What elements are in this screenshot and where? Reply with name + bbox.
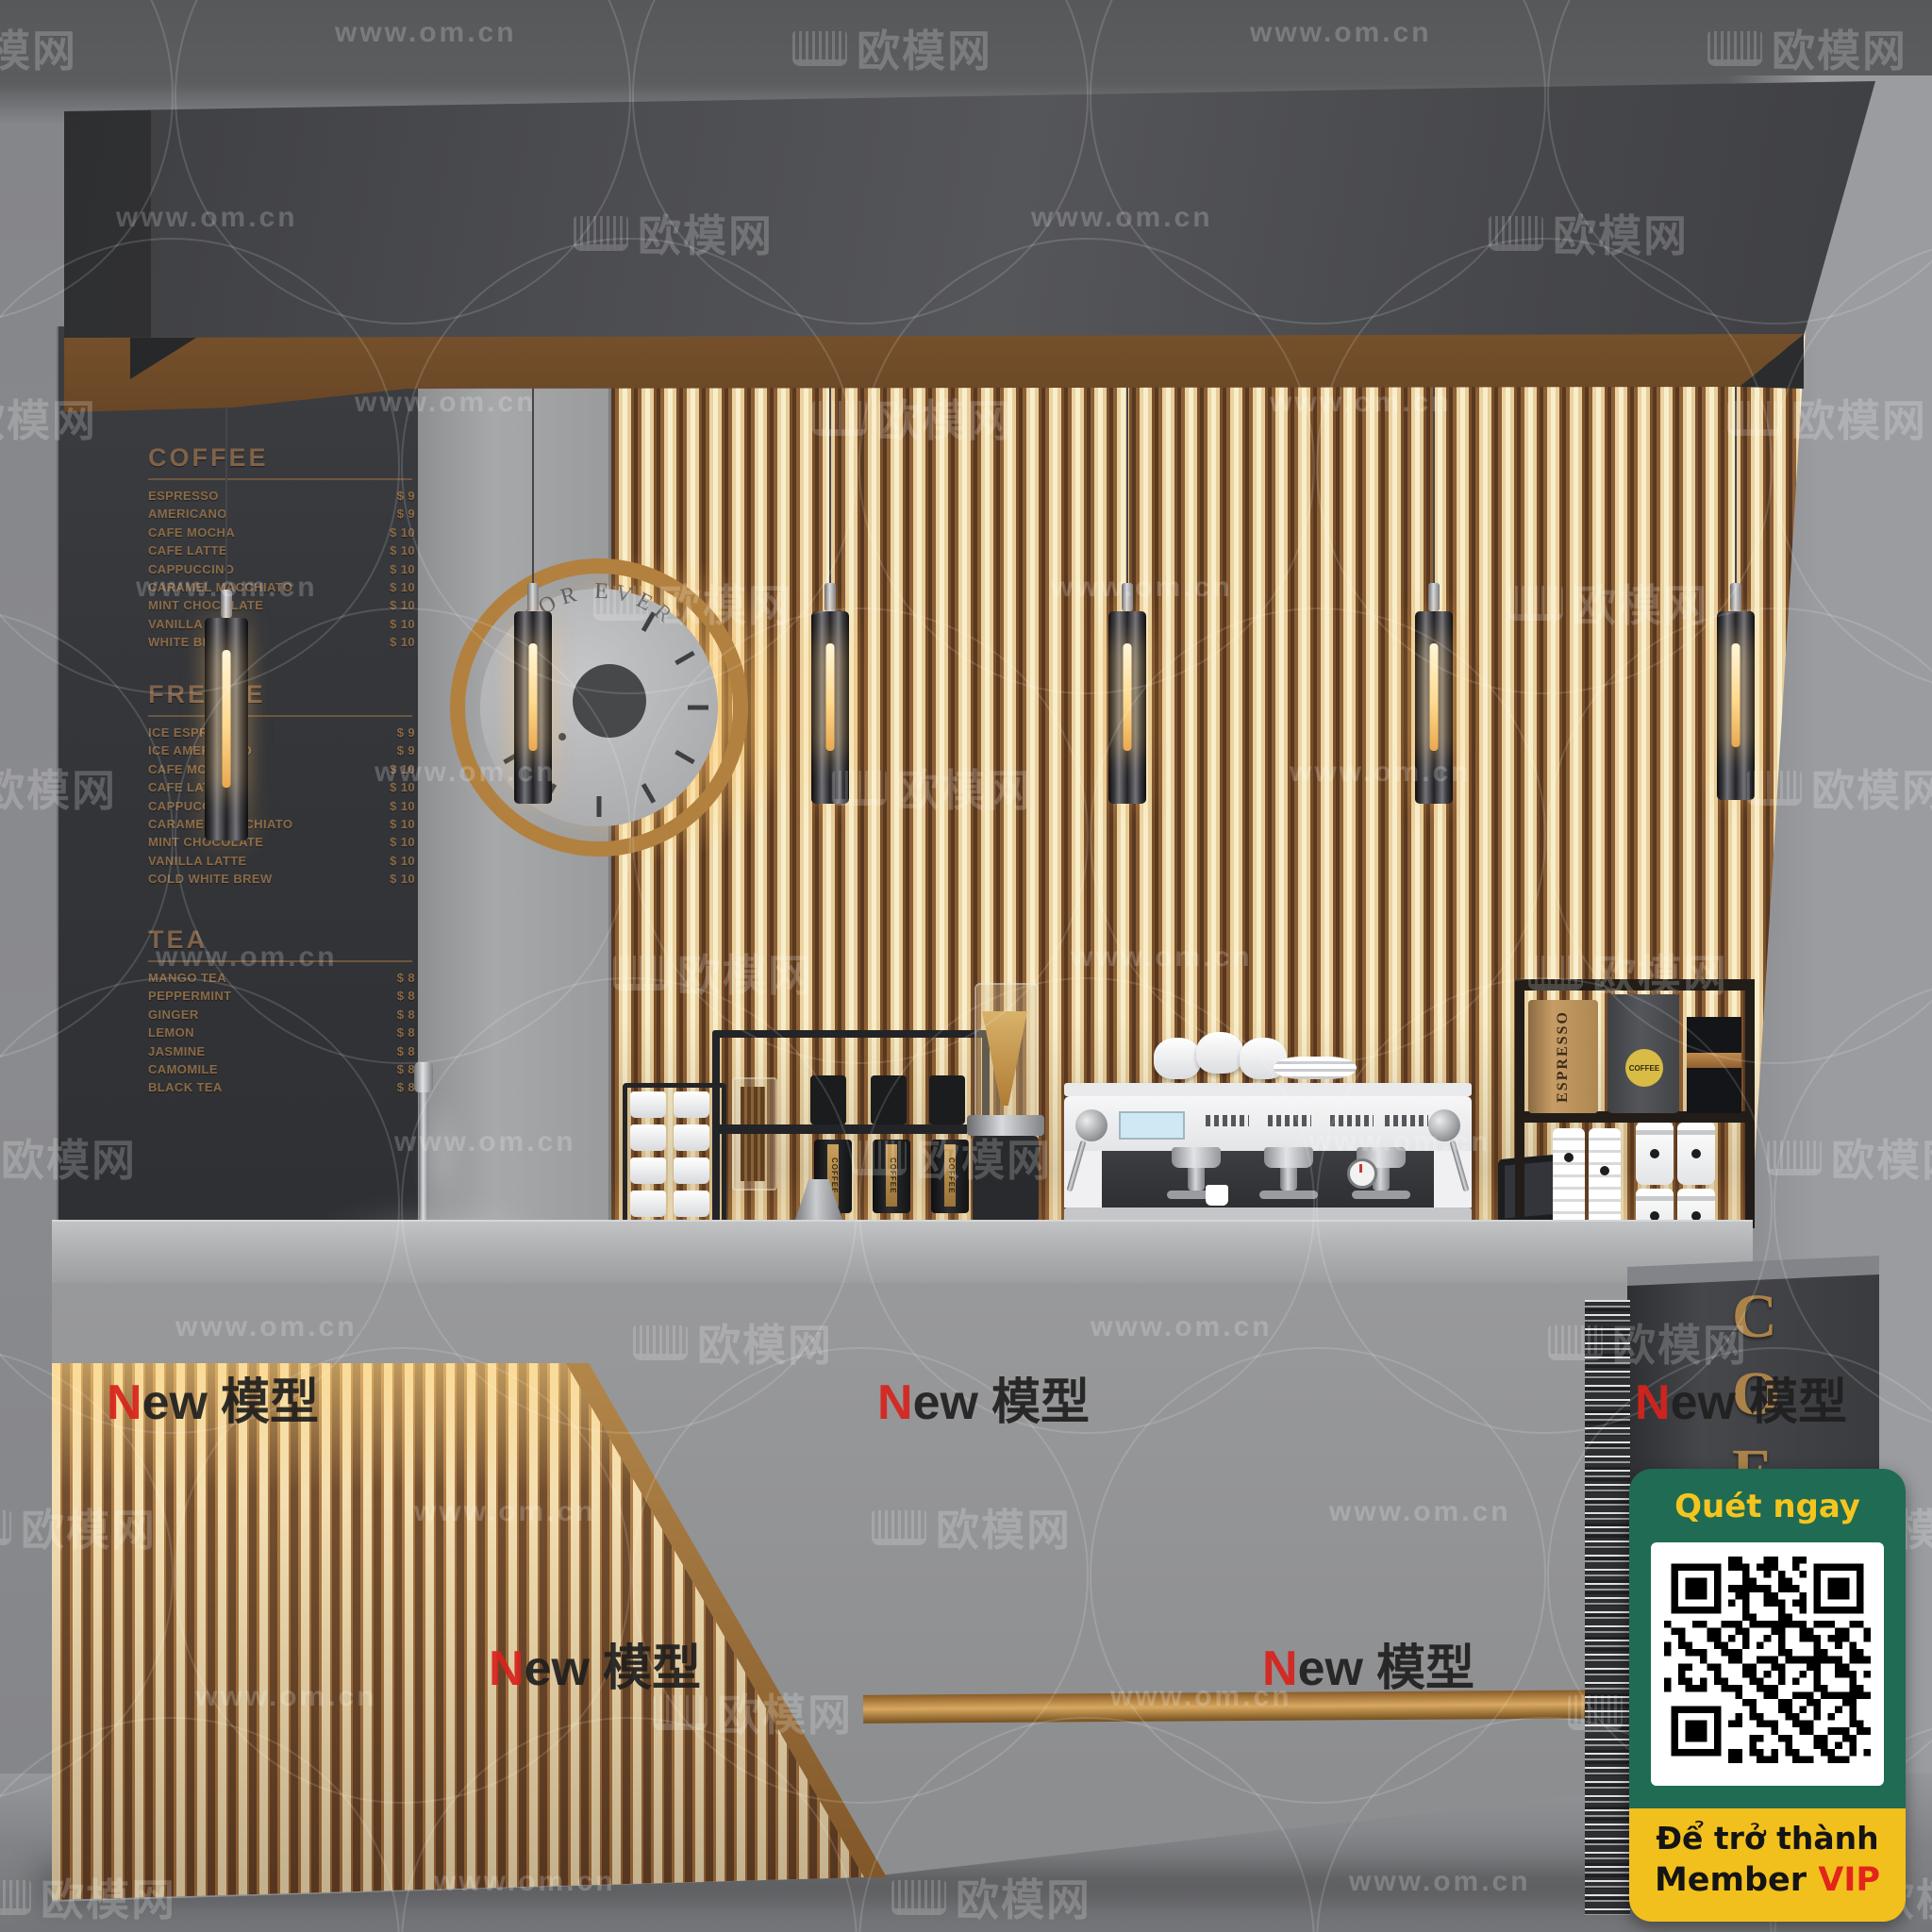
menu-divider — [148, 478, 412, 480]
menu-item-price: $ 10 — [390, 854, 415, 872]
coffee-bean-bag: COFFEE — [1607, 994, 1679, 1113]
coffee-jar — [929, 1075, 965, 1124]
menu-item-price: $ 8 — [397, 971, 415, 989]
menu-item: CARAMEL MACCHIATO$ 10 — [148, 817, 415, 835]
pendant-lamp — [1108, 611, 1146, 804]
menu-section-freeze: FREEZE ICE ESPRESSO$ 9ICE AMERICANO$ 9CA… — [148, 680, 418, 891]
menu-item-name: CAMOMILE — [148, 1062, 218, 1080]
menu-item-price: $ 8 — [397, 1008, 415, 1025]
menu-item: CAPPUCCINO$ 10 — [148, 799, 415, 817]
menu-item-name: AMERICANO — [148, 507, 227, 525]
menu-item-list: ICE ESPRESSO$ 9ICE AMERICANO$ 9CAFE MOCH… — [148, 725, 418, 891]
menu-item-name: PEPPERMINT — [148, 989, 232, 1007]
coffee-grinder — [967, 983, 1044, 1223]
coffee-badge: COFFEE — [1625, 1049, 1663, 1087]
menu-item: VANILLA LATTE$ 10 — [148, 617, 415, 635]
qr-code-panel — [1651, 1542, 1884, 1786]
counter-gold-strip — [863, 1690, 1629, 1724]
new-model-watermark: New模型 — [489, 1628, 701, 1699]
wall-clock: FOR EVER — [429, 528, 788, 896]
menu-item: CARAMEL MACCHIATO$ 10 — [148, 580, 415, 598]
paper-cup-stack — [1589, 1128, 1621, 1226]
machine-display — [1119, 1111, 1185, 1140]
menu-item-price: $ 9 — [397, 743, 415, 761]
menu-section-title: TEA — [148, 925, 418, 955]
clock-dot-small — [558, 733, 566, 741]
menu-item: CAFE MOCHA$ 10 — [148, 762, 415, 780]
lamp-cap — [221, 590, 232, 618]
menu-section-title: FREEZE — [148, 680, 418, 709]
menu-section-tea: TEA MANGO TEA$ 8PEPPERMINT$ 8GINGER$ 8LE… — [148, 925, 418, 1099]
coffee-jar — [810, 1075, 846, 1124]
menu-item-name: JASMINE — [148, 1044, 206, 1062]
pendant-lamp — [1415, 611, 1453, 804]
menu-item-name: BLACK TEA — [148, 1080, 223, 1098]
counter-top — [52, 1220, 1753, 1288]
menu-item: PEPPERMINT$ 8 — [148, 989, 415, 1007]
menu-item-price: $ 10 — [390, 817, 415, 835]
vip-label: VIP — [1818, 1861, 1880, 1899]
menu-item-name: CAFE LATTE — [148, 543, 227, 561]
menu-item: CAFE LATTE$ 10 — [148, 780, 415, 798]
qr-card-caption: Để trở thành — [1629, 1820, 1906, 1857]
menu-divider — [148, 960, 412, 962]
menu-item-name: MINT CHOCOLATE — [148, 598, 263, 616]
menu-item-price: $ 8 — [397, 1062, 415, 1080]
machine-knob — [1428, 1109, 1460, 1141]
menu-item: AMERICANO$ 9 — [148, 507, 415, 525]
menu-item-price: $ 10 — [390, 580, 415, 598]
togo-cup — [1636, 1123, 1674, 1185]
lamp-cap — [824, 583, 836, 611]
qr-card-title: Quét ngay — [1629, 1488, 1906, 1525]
menu-item-list: ESPRESSO$ 9AMERICANO$ 9CAFE MOCHA$ 10CAF… — [148, 489, 418, 654]
new-model-watermark: New模型 — [1635, 1362, 1847, 1433]
menu-item: CAFE LATTE$ 10 — [148, 543, 415, 561]
pressure-gauge — [1347, 1158, 1377, 1189]
machine-knob — [1075, 1109, 1108, 1141]
menu-item-name: VANILLA LATTE — [148, 854, 247, 872]
gift-box — [1687, 1017, 1741, 1113]
menu-item-price: $ 10 — [390, 799, 415, 817]
lamp-filament — [826, 643, 835, 751]
group-head — [1264, 1147, 1313, 1168]
coffee-canister: COFFEE — [931, 1140, 969, 1213]
togo-cup — [1677, 1123, 1715, 1185]
lamp-filament — [1124, 643, 1132, 751]
menu-item-name: LEMON — [148, 1025, 194, 1043]
menu-item: CAMOMILE$ 8 — [148, 1062, 415, 1080]
menu-item-price: $ 9 — [397, 507, 415, 525]
new-model-watermark: New模型 — [107, 1362, 319, 1433]
espresso-bean-bag: ESPRESSO — [1528, 1000, 1598, 1113]
lamp-filament — [1430, 643, 1439, 751]
pendant-lamp — [205, 618, 248, 841]
espresso-cup — [1154, 1038, 1201, 1079]
menu-item: LEMON$ 8 — [148, 1025, 415, 1043]
lamp-filament — [223, 650, 231, 788]
menu-item: VANILLA LATTE$ 10 — [148, 854, 415, 872]
menu-item: ICE AMERICANO$ 9 — [148, 743, 415, 761]
clock-center-disc — [573, 664, 646, 738]
menu-item-list: MANGO TEA$ 8PEPPERMINT$ 8GINGER$ 8LEMON$… — [148, 971, 418, 1099]
lamp-cap — [527, 583, 539, 611]
menu-item-price: $ 10 — [390, 562, 415, 580]
cafe-counter-render: COFFEE ESPRESSO$ 9AMERICANO$ 9CAFE MOCHA… — [0, 0, 1932, 1932]
menu-divider — [148, 715, 412, 717]
menu-item-name: ESPRESSO — [148, 489, 219, 507]
menu-item-price: $ 8 — [397, 1044, 415, 1062]
menu-item-price: $ 10 — [390, 835, 415, 853]
menu-item: GINGER$ 8 — [148, 1008, 415, 1025]
qr-promo-card: Quét ngay Để trở thành Member VIP — [1629, 1469, 1906, 1922]
menu-item-price: $ 9 — [397, 725, 415, 743]
menu-item: CAPPUCCINO$ 10 — [148, 562, 415, 580]
menu-section-coffee: COFFEE ESPRESSO$ 9AMERICANO$ 9CAFE MOCHA… — [148, 443, 418, 654]
menu-item: MANGO TEA$ 8 — [148, 971, 415, 989]
qr-card-member-line: Member VIP — [1629, 1861, 1906, 1899]
menu-item-price: $ 10 — [390, 525, 415, 543]
menu-section-title: COFFEE — [148, 443, 418, 473]
menu-item-price: $ 10 — [390, 762, 415, 780]
pendant-lamp — [514, 611, 552, 804]
menu-item-name: CAPPUCCINO — [148, 562, 234, 580]
menu-item-price: $ 8 — [397, 1025, 415, 1043]
menu-item: MINT CHOCOLATE$ 10 — [148, 598, 415, 616]
saucer-stack — [1274, 1057, 1357, 1079]
menu-item-price: $ 10 — [390, 617, 415, 635]
paper-cup-stack — [1553, 1128, 1585, 1226]
espresso-cup — [1196, 1032, 1243, 1074]
portafilter — [1352, 1191, 1410, 1199]
menu-item: ESPRESSO$ 9 — [148, 489, 415, 507]
menu-item: MINT CHOCOLATE$ 10 — [148, 835, 415, 853]
espresso-machine — [1064, 1028, 1472, 1223]
menu-item-name: CAFE MOCHA — [148, 525, 235, 543]
new-model-watermark: New模型 — [1262, 1628, 1474, 1699]
menu-item-price: $ 10 — [390, 635, 415, 653]
lamp-cap — [1122, 583, 1133, 611]
steam — [423, 1092, 460, 1217]
menu-item-name: COLD WHITE BREW — [148, 872, 273, 890]
lamp-filament — [529, 643, 538, 751]
group-head — [1172, 1147, 1221, 1168]
menu-item: ICE ESPRESSO$ 9 — [148, 725, 415, 743]
menu-item-price: $ 9 — [397, 489, 415, 507]
menu-item: JASMINE$ 8 — [148, 1044, 415, 1062]
menu-item-price: $ 8 — [397, 1080, 415, 1098]
menu-item-price: $ 10 — [390, 780, 415, 798]
menu-item: COLD WHITE BREW$ 10 — [148, 872, 415, 890]
menu-item: BLACK TEA$ 8 — [148, 1080, 415, 1098]
pendant-lamp — [1717, 611, 1755, 800]
menu-item-price: $ 8 — [397, 989, 415, 1007]
coffee-jar — [871, 1075, 907, 1124]
barcode-decor — [1585, 1300, 1630, 1915]
menu-item-price: $ 10 — [390, 598, 415, 616]
pendant-lamp — [811, 611, 849, 804]
lamp-filament — [1732, 643, 1740, 747]
qr-code — [1664, 1557, 1871, 1763]
lamp-cap — [1428, 583, 1440, 611]
sign-letter: C — [1732, 1281, 1807, 1353]
mug-rack — [623, 1083, 726, 1232]
new-model-watermark: New模型 — [877, 1362, 1090, 1433]
lamp-cap — [1730, 583, 1741, 611]
menu-item-price: $ 10 — [390, 872, 415, 890]
espresso-cup-small — [1206, 1185, 1228, 1206]
menu-item: CAFE MOCHA$ 10 — [148, 525, 415, 543]
menu-item-name: MANGO TEA — [148, 971, 226, 989]
display-shelf: COFFEE COFFEE COFFEE — [712, 1030, 990, 1238]
portafilter — [1259, 1191, 1318, 1199]
menu-item: WHITE BREW$ 10 — [148, 635, 415, 653]
coffee-canister: COFFEE — [873, 1140, 910, 1213]
menu-item-name: GINGER — [148, 1008, 199, 1025]
retail-shelf: ESPRESSO COFFEE — [1515, 972, 1755, 1228]
menu-item-price: $ 10 — [390, 543, 415, 561]
